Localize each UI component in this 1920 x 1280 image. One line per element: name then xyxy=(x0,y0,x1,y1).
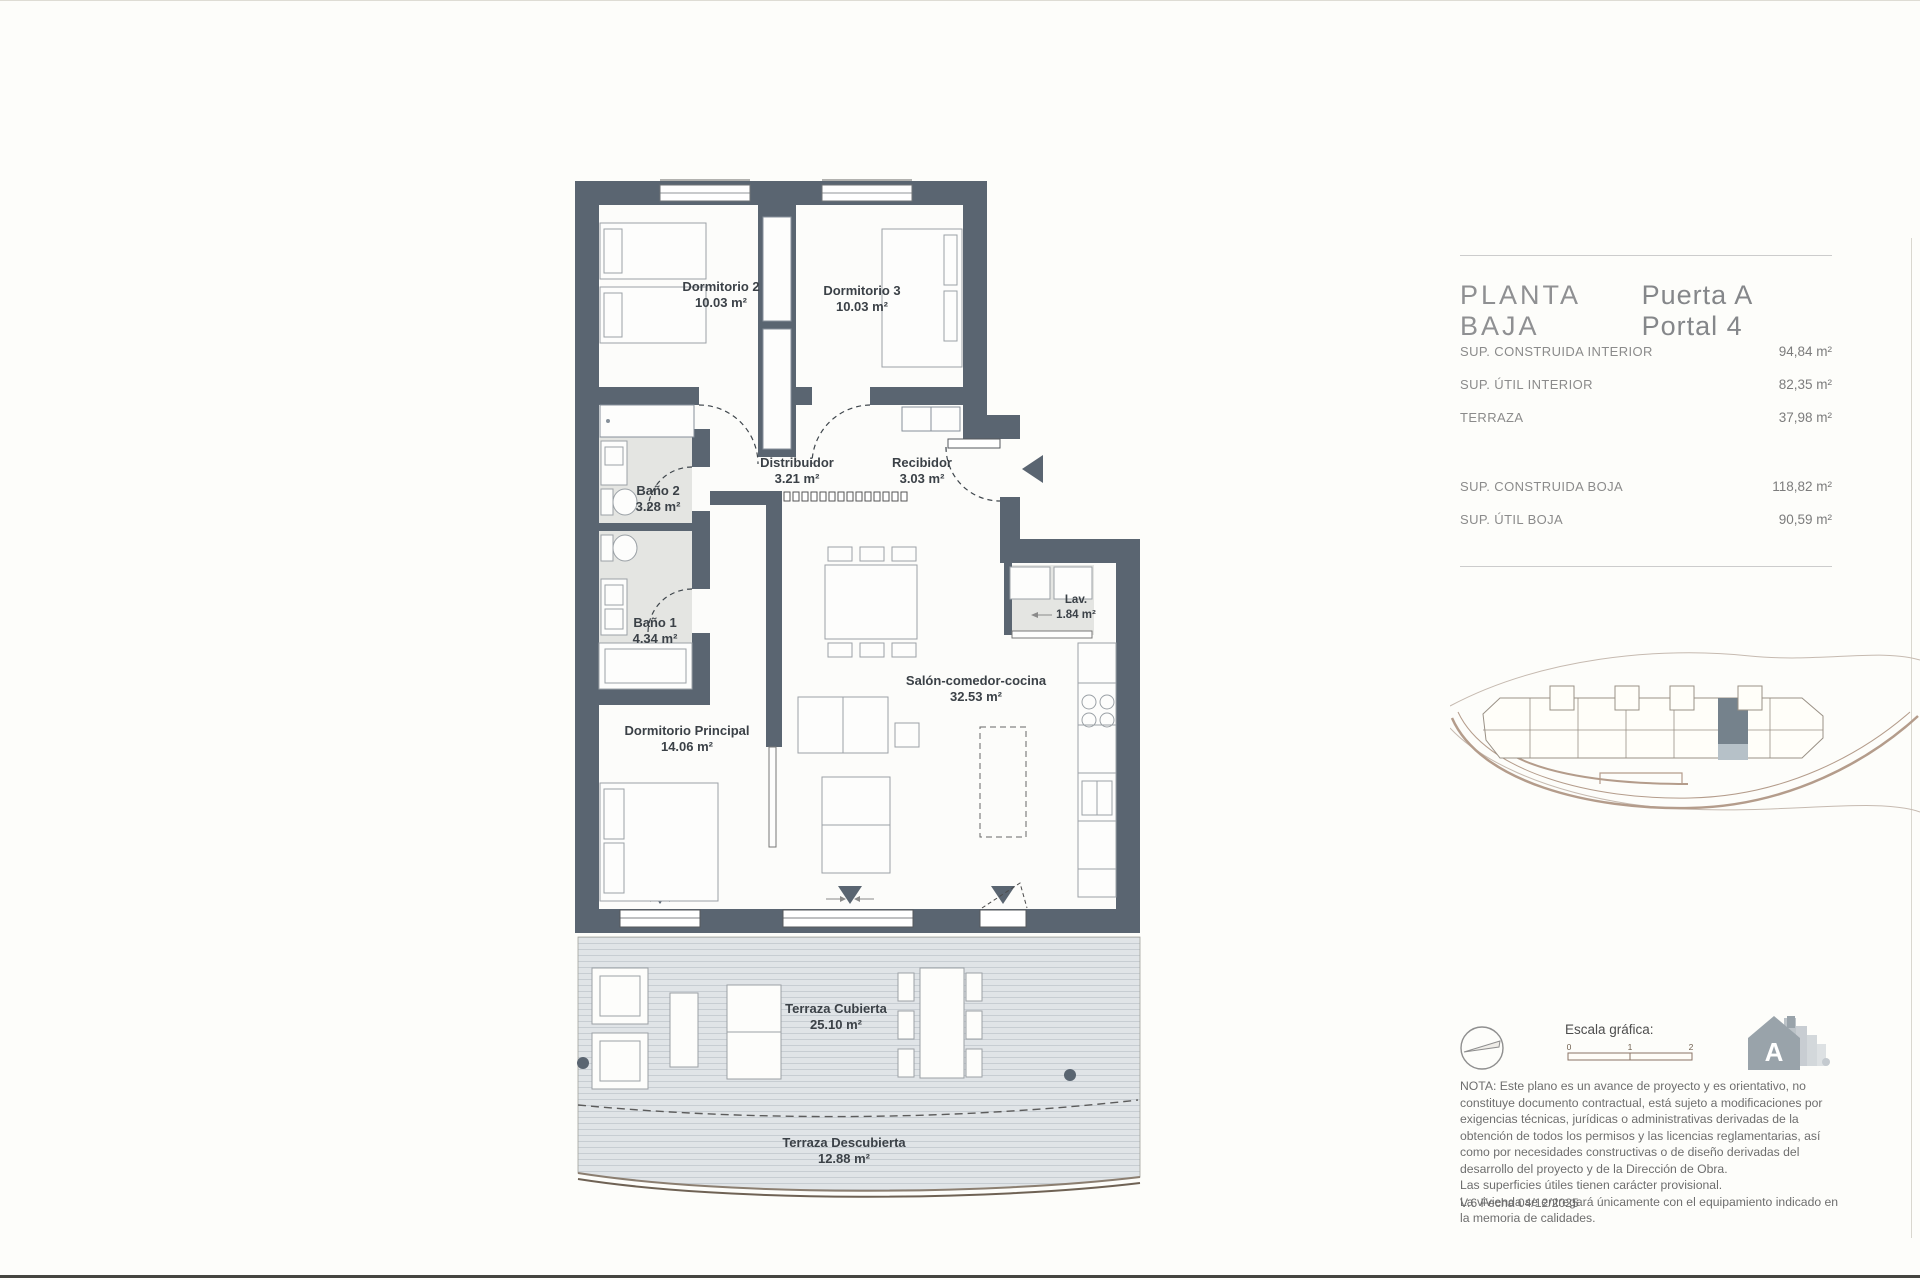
area-label: SUP. ÚTIL BOJA xyxy=(1460,512,1563,527)
scale-bar: 0 1 2 xyxy=(1565,1042,1701,1064)
scale-tick: 1 xyxy=(1628,1042,1633,1052)
area-value: 94,84 m² xyxy=(1779,344,1832,359)
compass-icon xyxy=(1458,1024,1506,1072)
wardrobe-icon xyxy=(600,405,694,437)
kitchen-counter-icon xyxy=(1078,643,1116,897)
room-area: 3.21 m² xyxy=(775,471,820,486)
sliding-panel-icon xyxy=(1012,631,1092,638)
sliding-door-icon xyxy=(783,910,913,927)
scale-label: Escala gráfica: xyxy=(1565,1022,1654,1037)
area-row: SUP. ÚTIL BOJA 90,59 m² xyxy=(1460,512,1832,527)
room-label: Recibidor xyxy=(892,455,952,470)
area-row: SUP. ÚTIL INTERIOR 82,35 m² xyxy=(1460,377,1832,392)
area-row: SUP. CONSTRUIDA BOJA 118,82 m² xyxy=(1460,479,1832,494)
energy-letter: A xyxy=(1765,1037,1784,1067)
room-area: 4.34 m² xyxy=(633,631,678,646)
terrace-door-icon xyxy=(980,910,1026,927)
outdoor-dining-table-icon xyxy=(920,968,964,1078)
area-value: 90,59 m² xyxy=(1779,512,1832,527)
sheet-top-edge xyxy=(0,0,1920,1)
terrace-column xyxy=(1064,1069,1076,1081)
room-area: 1.84 m² xyxy=(1056,609,1096,621)
room-label: Lav. xyxy=(1065,594,1087,606)
toilet-icon xyxy=(601,535,613,561)
area-label: TERRAZA xyxy=(1460,410,1523,425)
version-label: V.6 Fecha 04/12/2025 xyxy=(1460,1196,1579,1210)
page-title: PLANTA BAJA xyxy=(1460,280,1642,342)
note-paragraph: NOTA: Este plano es un avance de proyect… xyxy=(1460,1078,1844,1177)
plan-sheet: Dormitorio 2 10.03 m² Dormitorio 3 10.03… xyxy=(0,0,1920,1280)
area-value: 37,98 m² xyxy=(1779,410,1832,425)
room-label: Dormitorio 3 xyxy=(823,283,900,298)
entry-marker-triangle xyxy=(1022,455,1043,483)
area-row: TERRAZA 37,98 m² xyxy=(1460,410,1832,425)
room-area: 25.10 m² xyxy=(810,1017,863,1032)
side-table-icon xyxy=(670,993,698,1067)
panel-divider-top xyxy=(1460,255,1832,256)
area-label: SUP. CONSTRUIDA BOJA xyxy=(1460,479,1623,494)
room-label: Terraza Descubierta xyxy=(782,1135,906,1150)
room-label: Salón-comedor-cocina xyxy=(906,673,1047,688)
room-area: 3.28 m² xyxy=(636,499,681,514)
room-label: Dormitorio 2 xyxy=(682,279,759,294)
dining-table-icon xyxy=(825,565,917,639)
site-plan-sketch xyxy=(1450,632,1920,832)
highlighted-unit-terrace xyxy=(1718,744,1748,760)
area-label: SUP. ÚTIL INTERIOR xyxy=(1460,377,1593,392)
scale-tick: 0 xyxy=(1567,1042,1572,1052)
unit-title: Puerta A Portal 4 xyxy=(1642,280,1832,342)
area-row: SUP. CONSTRUIDA INTERIOR 94,84 m² xyxy=(1460,344,1832,359)
sheet-bottom-edge xyxy=(0,1275,1920,1278)
room-label: Dormitorio Principal xyxy=(625,723,750,738)
room-area: 10.03 m² xyxy=(695,295,748,310)
room-area: 32.53 m² xyxy=(950,689,1003,704)
terrace-column xyxy=(577,1057,589,1069)
building-block xyxy=(1483,686,1823,760)
energy-rating-icon: A xyxy=(1740,1008,1832,1076)
scale-tick: 2 xyxy=(1689,1042,1694,1052)
room-label: Baño 2 xyxy=(636,483,679,498)
room-area: 12.88 m² xyxy=(818,1151,871,1166)
panel-title-row: PLANTA BAJA Puerta A Portal 4 xyxy=(1460,280,1832,342)
room-area: 14.06 m² xyxy=(661,739,714,754)
floor-plan: Dormitorio 2 10.03 m² Dormitorio 3 10.03… xyxy=(570,175,1160,1215)
note-line: Las superficies útiles tienen carácter p… xyxy=(1460,1177,1844,1194)
side-table-icon xyxy=(895,723,919,747)
panel-divider-bottom xyxy=(1460,566,1832,567)
room-label: Distribuidor xyxy=(760,455,834,470)
entry-door-leaf xyxy=(948,439,1000,448)
area-value: 82,35 m² xyxy=(1779,377,1832,392)
sliding-panel-icon xyxy=(769,747,776,847)
sliding-door-icon xyxy=(620,910,700,927)
room-area: 3.03 m² xyxy=(900,471,945,486)
area-value: 118,82 m² xyxy=(1772,479,1832,494)
room-label: Terraza Cubierta xyxy=(785,1001,887,1016)
toilet-icon xyxy=(601,489,613,515)
area-label: SUP. CONSTRUIDA INTERIOR xyxy=(1460,344,1653,359)
closet-icon xyxy=(763,329,791,449)
closet-icon xyxy=(763,217,791,321)
room-label: Baño 1 xyxy=(633,615,676,630)
room-area: 10.03 m² xyxy=(836,299,889,314)
washer-icon xyxy=(1010,567,1050,599)
